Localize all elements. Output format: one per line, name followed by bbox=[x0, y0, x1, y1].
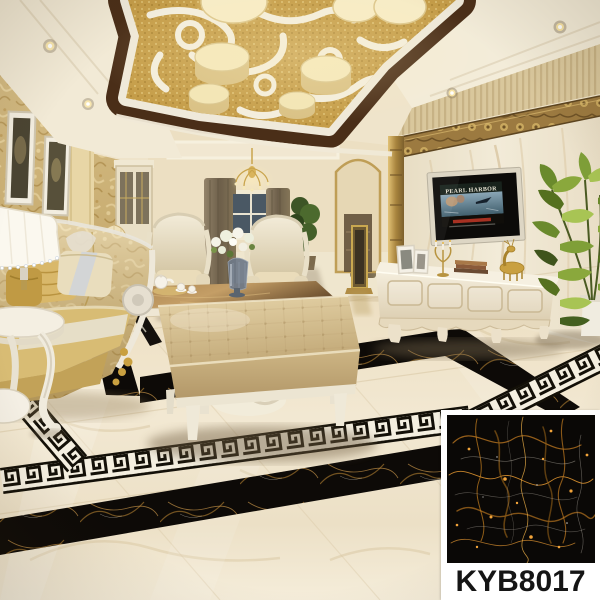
tile-sample-card: KYB8017 bbox=[441, 410, 600, 600]
tile-code-label: KYB8017 bbox=[441, 564, 600, 600]
showroom-photo: PEARL HARBOR bbox=[0, 0, 600, 600]
tile-swatch bbox=[447, 415, 595, 563]
tile-swatch-texture bbox=[447, 415, 595, 563]
